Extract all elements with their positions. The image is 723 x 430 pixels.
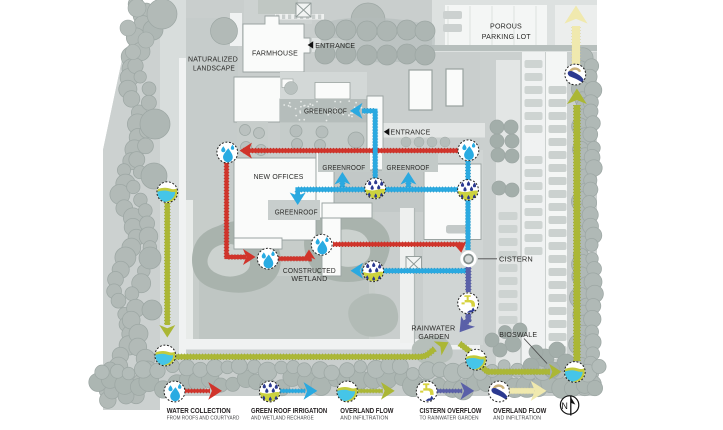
svg-text:WATER COLLECTION: WATER COLLECTION	[167, 408, 231, 415]
svg-text:AND INFILTRATION: AND INFILTRATION	[340, 416, 388, 422]
svg-text:FARMHOUSE: FARMHOUSE	[252, 50, 298, 57]
svg-text:OVERLAND FLOW: OVERLAND FLOW	[493, 408, 547, 415]
svg-text:GREEN ROOF IRRIGATION: GREEN ROOF IRRIGATION	[251, 408, 327, 415]
svg-text:GREENROOF: GREENROOF	[275, 210, 318, 217]
svg-text:GREENROOF: GREENROOF	[304, 109, 347, 116]
svg-text:GARDEN: GARDEN	[418, 334, 449, 341]
svg-text:TO RAINWATER GARDEN: TO RAINWATER GARDEN	[420, 416, 479, 422]
svg-text:NATURALIZED: NATURALIZED	[188, 57, 238, 64]
svg-text:NEW OFFICES: NEW OFFICES	[254, 174, 304, 181]
svg-text:ENTRANCE: ENTRANCE	[391, 130, 431, 137]
svg-text:GREENROOF: GREENROOF	[387, 165, 430, 172]
svg-text:POROUS: POROUS	[490, 23, 522, 30]
svg-text:OVERLAND FLOW: OVERLAND FLOW	[340, 408, 394, 415]
svg-text:PARKING LOT: PARKING LOT	[482, 34, 532, 41]
svg-text:RAINWATER: RAINWATER	[411, 326, 455, 333]
svg-text:ENTRANCE: ENTRANCE	[315, 43, 355, 50]
svg-text:AND WETLAND RECHARGE: AND WETLAND RECHARGE	[251, 416, 314, 422]
svg-text:N: N	[562, 401, 568, 411]
svg-text:LANDSCAPE: LANDSCAPE	[193, 66, 235, 73]
svg-text:GREENROOF: GREENROOF	[322, 165, 365, 172]
svg-text:AND INFILTRATION: AND INFILTRATION	[493, 416, 541, 422]
svg-text:FROM ROOFS AND COURTYARD: FROM ROOFS AND COURTYARD	[167, 416, 240, 422]
svg-text:CISTERN: CISTERN	[499, 257, 533, 264]
svg-text:BIOSWALE: BIOSWALE	[499, 332, 537, 339]
svg-text:CONSTRUCTED: CONSTRUCTED	[283, 268, 336, 275]
svg-text:CISTERN OVERFLOW: CISTERN OVERFLOW	[420, 408, 482, 415]
svg-text:WETLAND: WETLAND	[291, 276, 327, 283]
